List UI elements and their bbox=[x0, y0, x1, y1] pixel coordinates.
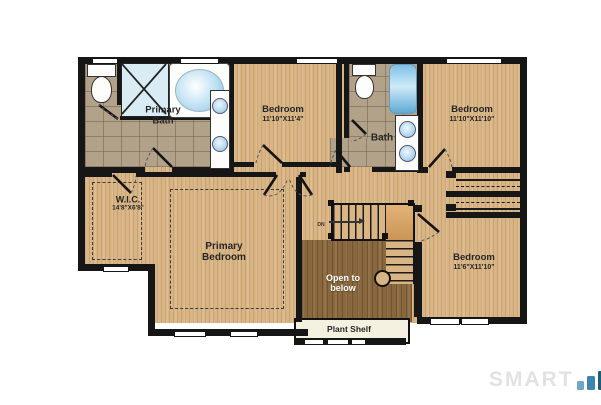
room-name: W.I.C. bbox=[112, 194, 144, 204]
room-label-wic: W.I.C. 14'8"X6'8" bbox=[112, 194, 144, 211]
room-label-bedroom-top-middle: Bedroom 11'10"X11'4" bbox=[262, 105, 304, 123]
door-leaf bbox=[418, 214, 439, 232]
room-dims: 14'8"X6'8" bbox=[112, 204, 144, 211]
room-name: Bedroom bbox=[449, 105, 494, 116]
door-leaf bbox=[429, 149, 445, 167]
door-arc bbox=[256, 145, 263, 163]
door-swings-overlay bbox=[0, 0, 601, 405]
room-name: Bedroom bbox=[262, 105, 304, 116]
label-line: DN bbox=[317, 222, 324, 228]
door-leaf bbox=[336, 150, 350, 167]
room-label-bedroom-bottom-right: Bedroom 11'6"X11'10" bbox=[453, 253, 495, 271]
room-label-bedroom-top-right: Bedroom 11'10"X11'10" bbox=[449, 105, 494, 123]
door-leaf bbox=[299, 175, 312, 195]
label-line: Plant Shelf bbox=[327, 325, 371, 335]
door-arc bbox=[264, 178, 288, 196]
room-name: Bedroom bbox=[453, 253, 495, 264]
door-arc bbox=[330, 150, 336, 167]
watermark: SMART bbox=[489, 366, 601, 390]
door-arc bbox=[419, 232, 439, 241]
label-line: below bbox=[326, 283, 360, 293]
label-line: Primary bbox=[202, 241, 246, 252]
door-leaf bbox=[99, 105, 118, 119]
room-dims: 11'10"X11'4" bbox=[262, 115, 304, 123]
door-leaf bbox=[264, 175, 277, 195]
room-name: Bath bbox=[371, 132, 393, 143]
label-line: Open to bbox=[326, 273, 360, 283]
open-to-below-label: Open to below bbox=[326, 273, 360, 293]
stairs-dn-label: DN bbox=[317, 213, 324, 231]
room-dims: 11'6"X11'10" bbox=[453, 263, 495, 271]
room-label-primary-bath: Primary Bath bbox=[145, 105, 180, 126]
door-arc bbox=[445, 149, 452, 167]
room-label-bath: Bath bbox=[371, 132, 393, 143]
door-arc bbox=[289, 178, 312, 196]
door-leaf bbox=[263, 145, 282, 163]
door-arc bbox=[131, 176, 136, 193]
door-leaf bbox=[153, 148, 172, 167]
door-arc bbox=[351, 134, 366, 141]
door-arc bbox=[145, 148, 153, 167]
room-dims: 11'10"X11'10" bbox=[449, 115, 494, 123]
watermark-bar-medium bbox=[587, 376, 595, 390]
floor-plan: Primary Bath Bedroom 11'10"X11'4" Bath B… bbox=[0, 0, 601, 405]
label-line: Bath bbox=[145, 116, 180, 127]
watermark-bar-small bbox=[577, 381, 584, 390]
door-leaf bbox=[352, 120, 366, 134]
watermark-text: SMART bbox=[489, 369, 574, 390]
plant-shelf-label: Plant Shelf bbox=[327, 325, 371, 335]
door-leaf bbox=[113, 175, 131, 193]
label-line: Bedroom bbox=[202, 252, 246, 263]
room-label-primary-bedroom: Primary Bedroom bbox=[202, 241, 246, 263]
